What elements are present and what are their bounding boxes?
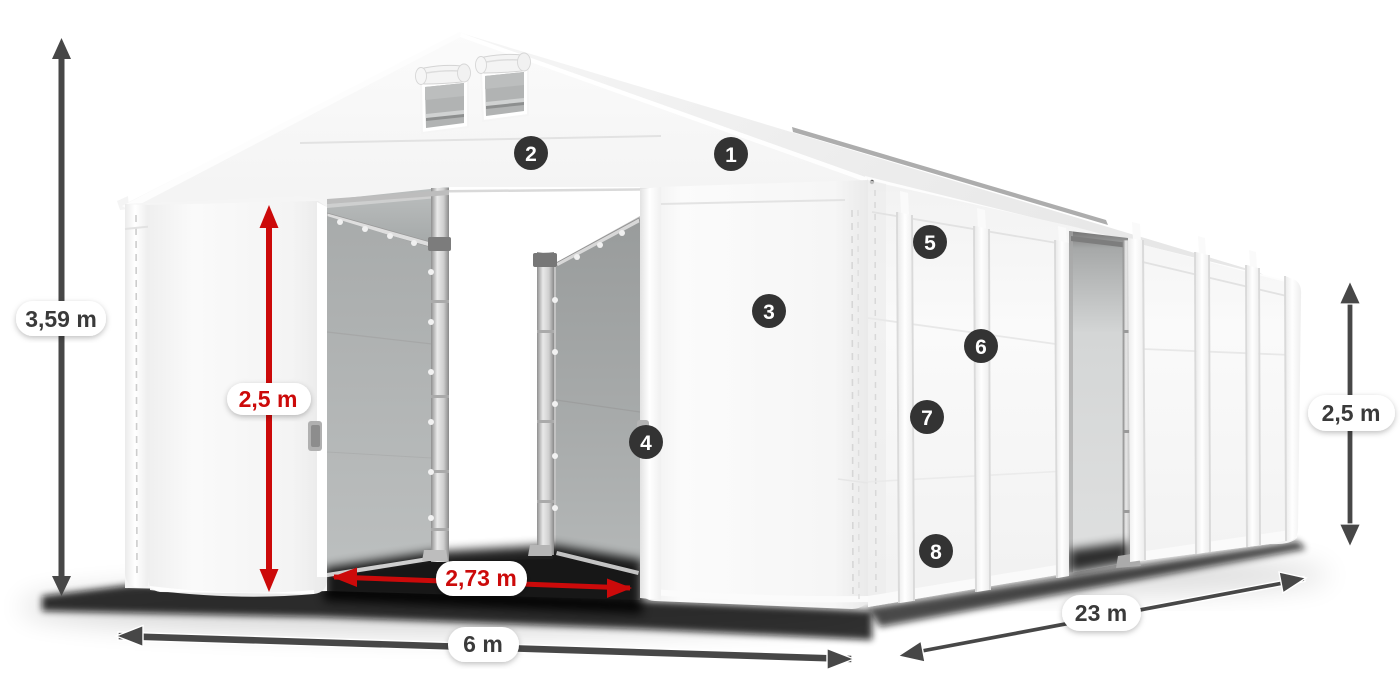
svg-text:2,73 m: 2,73 m	[445, 565, 517, 591]
svg-text:2,5 m: 2,5 m	[1322, 400, 1381, 426]
svg-text:3,59 m: 3,59 m	[25, 306, 97, 332]
svg-text:8: 8	[930, 541, 942, 564]
svg-text:23 m: 23 m	[1075, 600, 1127, 626]
svg-text:7: 7	[921, 407, 933, 430]
svg-text:3: 3	[763, 301, 775, 324]
svg-text:6 m: 6 m	[463, 631, 503, 657]
svg-text:2,5 m: 2,5 m	[239, 386, 298, 412]
svg-text:4: 4	[640, 432, 652, 455]
svg-text:5: 5	[924, 232, 936, 255]
svg-text:1: 1	[725, 144, 737, 167]
svg-text:2: 2	[525, 143, 537, 166]
svg-text:6: 6	[975, 336, 987, 359]
